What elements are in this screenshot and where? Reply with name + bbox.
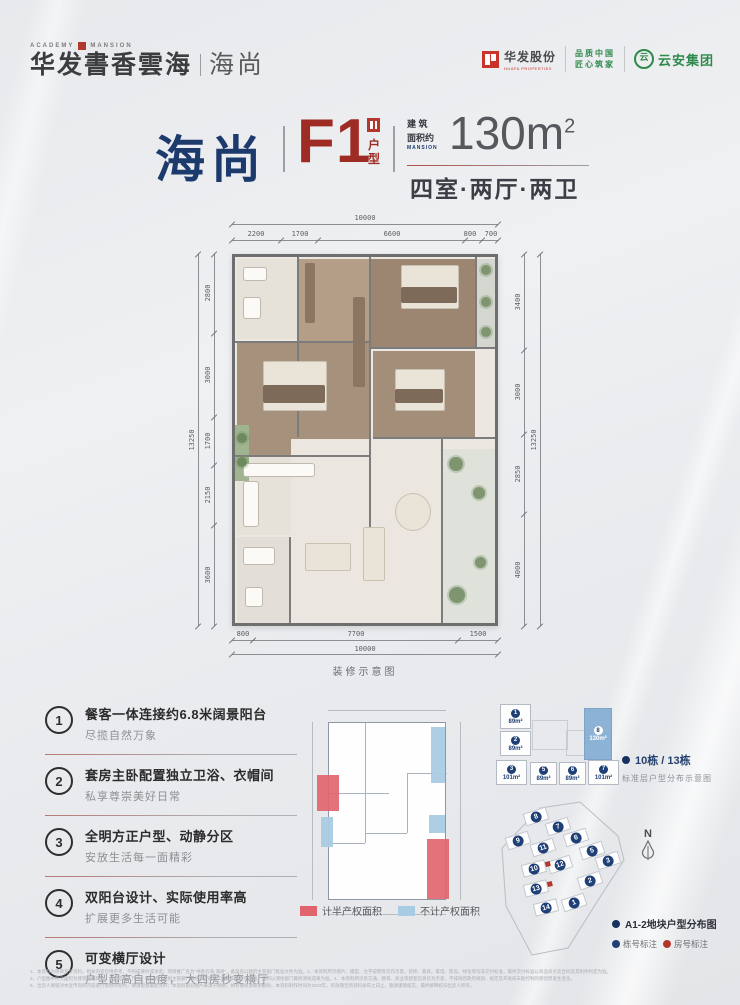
brand-mansion-label: MANSION: [90, 43, 132, 49]
huafa-text: 华发股份 HUAFA PROPERTIES: [504, 48, 556, 71]
project-title: 海尚: [155, 120, 267, 192]
kitchen-counter: [243, 481, 259, 527]
feature-separator: [45, 876, 297, 877]
wardrobe: [353, 297, 365, 387]
bed-blanket: [263, 385, 325, 403]
unit-1: 1 89m²: [500, 704, 531, 729]
bathtub: [243, 547, 275, 565]
title-rule: [407, 165, 589, 166]
disclaimer-line: 5、出卖人保留对本宣传资料内容进行修改的权利，敬请留意最新资料；本资料部分图片来…: [30, 982, 710, 989]
mini-blue-area: [431, 727, 445, 783]
toilet: [243, 297, 261, 319]
brand-subname: 海尚: [209, 52, 265, 77]
ownership-mini-plan: [302, 706, 474, 931]
unit-code: F1: [297, 106, 371, 177]
floorplate-caption: 10栋 / 13栋 标准层户型分布示意图: [622, 752, 732, 784]
core-outline: [532, 720, 568, 750]
feature-item: 3 全明方正户型、动静分区 安放生活每一面精彩: [45, 820, 297, 872]
huafa-name: 华发股份: [504, 48, 556, 65]
mini-blue-area: [321, 817, 333, 847]
feature-separator: [45, 937, 297, 938]
site-legend-title: A1-2地块户型分布图: [625, 916, 717, 931]
building-dot-icon: [622, 756, 630, 764]
legend-room-no: 房号标注: [663, 938, 708, 950]
feature-desc: 私享尊崇美好日常: [85, 788, 274, 804]
huafa-en: HUAFA PROPERTIES: [504, 66, 556, 71]
brand-lockup: ACADEMY MANSION 华发書香雲海 海尚: [30, 42, 265, 77]
brand-divider: [200, 54, 201, 76]
brand-seal-icon: [78, 42, 86, 50]
toilet: [245, 587, 263, 607]
title-block: 海尚 F1 户型 建 筑 面积约 MANSION 130m2 四室·两厅·两卫: [155, 112, 595, 207]
legend-red-item: 计半产权面积: [300, 903, 382, 918]
layout-spec: 四室·两厅·两卫: [410, 170, 579, 204]
mini-plan-legend: 计半产权面积 不计产权面积: [300, 903, 490, 918]
partner-divider: [565, 46, 566, 72]
huafa-logo-icon: [482, 51, 499, 68]
feature-title: 双阳台设计、实际使用率高: [85, 887, 247, 906]
plant: [449, 457, 463, 471]
disclaimer-line: 3、户型图中所示面积为建筑面积约数，户型结构、尺寸、朝向等以规划主管部门最终审定…: [30, 975, 710, 982]
feature-item: 1 餐客一体连接约6.8米阔景阳台 尽揽自然万象: [45, 698, 297, 750]
brand-name: 华发書香雲海: [30, 52, 192, 77]
brand-academy-label: ACADEMY: [30, 43, 74, 49]
yunan-logo-icon: 云: [634, 49, 654, 69]
wall: [371, 347, 495, 349]
unit-5: 5 89m²: [530, 762, 557, 785]
wall: [373, 437, 495, 439]
slogan-line2: 匠心筑家: [575, 59, 615, 70]
area-superscript: 2: [564, 116, 575, 138]
sofa: [363, 527, 385, 581]
feature-number: 1: [45, 706, 73, 734]
area-labels: 建 筑 面积约 MANSION: [407, 118, 438, 153]
floorplan-rendering: [232, 254, 498, 626]
feature-number: 4: [45, 889, 73, 917]
brand-name-row: 华发書香雲海 海尚: [30, 52, 265, 77]
wall: [475, 257, 477, 347]
site-legend-title-row: A1-2地块户型分布图: [612, 916, 737, 931]
wall: [235, 341, 369, 343]
slogan-line1: 品质中国: [575, 48, 615, 59]
area-label-en: MANSION: [407, 145, 438, 153]
disclaimer-text: 1、本资料为项目宣传资料，相关内容仅供参考，不构成要约或承诺；项目推广名为“书香…: [30, 968, 710, 989]
floorplate-diagram: 1 89m² 2 89m² 8 130m² 3 101m² 5 89m² 6 8…: [492, 698, 634, 790]
feature-desc: 扩展更多生活可能: [85, 910, 247, 926]
feature-number: 2: [45, 767, 73, 795]
legend-building-no: 栋号标注: [612, 938, 657, 950]
blue-dot-icon: [612, 940, 620, 948]
unit-suffix: 户型: [368, 138, 382, 167]
site-legend-items: 栋号标注 房号标注: [612, 938, 737, 950]
poster-canvas: ACADEMY MANSION 华发書香雲海 海尚 华发股份 HUAFA PRO…: [0, 0, 740, 1005]
feature-item: 4 双阳台设计、实际使用率高 扩展更多生活可能: [45, 881, 297, 933]
legend-dot-icon: [612, 920, 620, 928]
unit-7: 7 101m²: [588, 760, 619, 785]
compass-icon: [640, 840, 656, 862]
plant: [481, 297, 491, 307]
feature-number: 3: [45, 828, 73, 856]
yunan-logo-block: 云 云安集团: [634, 49, 714, 69]
wardrobe: [305, 263, 315, 323]
unit-seal-icon: [367, 118, 380, 132]
partner-slogan: 品质中国 匠心筑家: [575, 48, 615, 70]
mini-blue-area: [429, 815, 445, 833]
partner-divider: [624, 46, 625, 72]
blue-swatch-icon: [398, 906, 415, 916]
feature-title: 餐客一体连接约6.8米阔景阳台: [85, 704, 267, 723]
dining-table: [305, 543, 351, 571]
north-label: N: [638, 828, 658, 840]
plant: [237, 433, 247, 443]
unit-3: 3 101m²: [496, 760, 527, 785]
unit-6: 6 89m²: [559, 762, 586, 785]
disclaimer-line: 1、本资料为项目宣传资料，相关内容仅供参考，不构成要约或承诺；项目推广名为“书香…: [30, 968, 710, 975]
wall: [289, 537, 291, 623]
unit-8-highlighted: 8 130m²: [584, 708, 612, 760]
wall: [441, 439, 443, 623]
bed-blanket: [401, 287, 457, 303]
feature-title: 全明方正户型、动静分区: [85, 826, 234, 845]
feature-title: 套房主卧配置独立卫浴、衣帽间: [85, 765, 274, 784]
unit-2: 2 89m²: [500, 731, 531, 756]
core-outline: [566, 730, 586, 756]
plant: [481, 265, 491, 275]
mini-red-area: [317, 775, 339, 811]
kitchen-counter: [243, 463, 315, 477]
area-value: 130m2: [449, 106, 575, 160]
background-streak: [0, 0, 109, 596]
mini-red-area: [427, 839, 449, 899]
feature-desc: 尽揽自然万象: [85, 727, 267, 743]
plan-caption: 装修示意图: [232, 663, 498, 678]
mini-plan-outline: [328, 722, 446, 900]
brand-eyebrow: ACADEMY MANSION: [30, 42, 265, 50]
sink: [243, 267, 267, 281]
red-swatch-icon: [300, 906, 317, 916]
wall: [235, 455, 369, 457]
feature-item: 2 套房主卧配置独立卫浴、衣帽间 私享尊崇美好日常: [45, 759, 297, 811]
huafa-logo-block: 华发股份 HUAFA PROPERTIES: [482, 48, 556, 71]
yunan-name: 云安集团: [658, 50, 714, 69]
partner-logos: 华发股份 HUAFA PROPERTIES 品质中国 匠心筑家 云 云安集团: [482, 46, 714, 72]
floorplate-caption-title: 10栋 / 13栋: [635, 752, 691, 768]
legend-blue-item: 不计产权面积: [398, 903, 480, 918]
feature-list: 1 餐客一体连接约6.8米阔景阳台 尽揽自然万象 2 套房主卧配置独立卫浴、衣帽…: [45, 698, 297, 994]
feature-desc: 安放生活每一面精彩: [85, 849, 234, 865]
bed-blanket: [395, 389, 443, 403]
wall: [369, 257, 371, 537]
area-label-1: 建 筑: [407, 118, 438, 132]
feature-separator: [45, 815, 297, 816]
feature-title: 可变横厅设计: [85, 948, 269, 967]
title-divider: [393, 126, 395, 172]
red-dot-icon: [663, 940, 671, 948]
site-plan-legend: A1-2地块户型分布图 栋号标注 房号标注: [612, 916, 737, 950]
plant: [473, 487, 485, 499]
north-compass: N: [638, 828, 658, 867]
plant: [481, 327, 491, 337]
lounge-chair: [395, 493, 431, 531]
feature-separator: [45, 754, 297, 755]
floorplate-caption-sub: 标准层户型分布示意图: [622, 773, 732, 784]
title-divider: [283, 126, 285, 172]
area-label-2: 面积约: [407, 132, 438, 146]
plant: [449, 587, 465, 603]
plant: [237, 457, 247, 467]
plant: [475, 557, 486, 568]
